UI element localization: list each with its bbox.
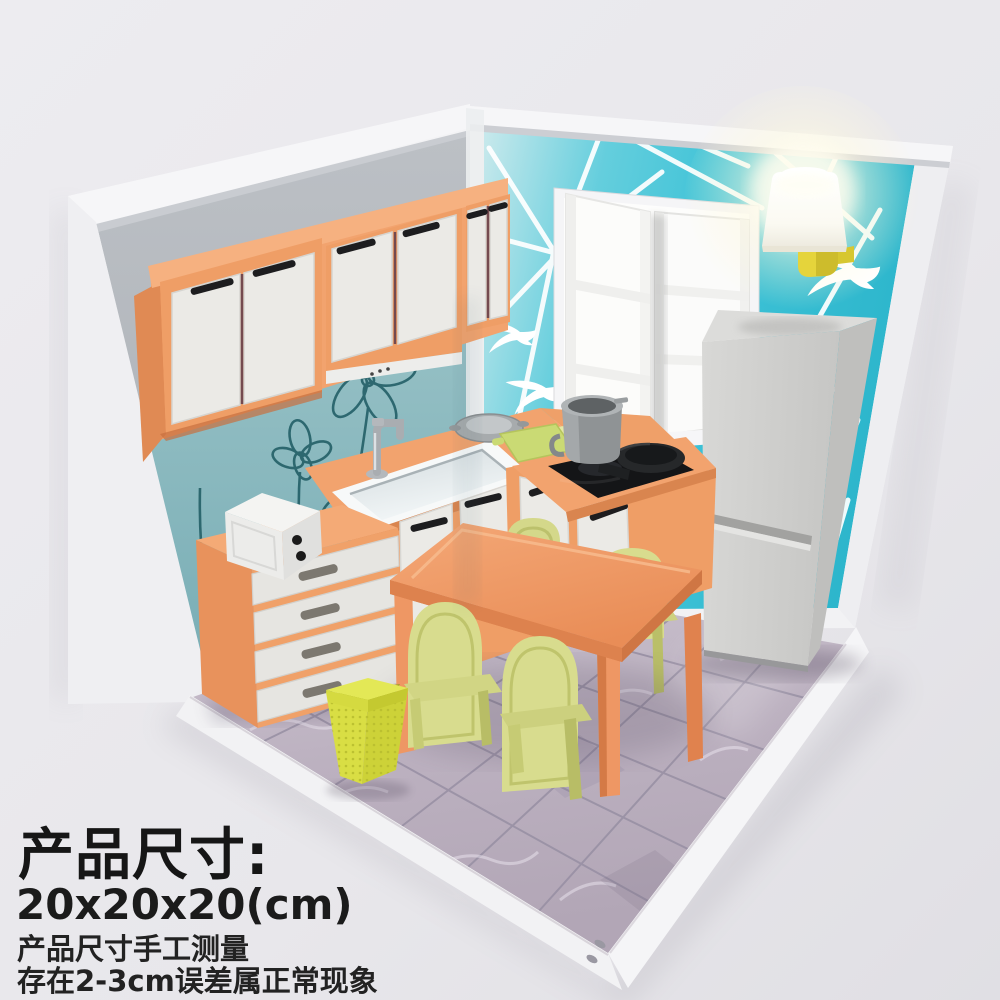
microwave-knob xyxy=(296,551,306,561)
wall-lamp xyxy=(684,86,920,322)
corner-shadow xyxy=(455,295,480,610)
miniature-kitchen-scene xyxy=(0,0,1000,1000)
microwave-knob xyxy=(292,535,302,545)
product-photo-miniature-kitchen: 产品尺寸: 20x20x20(cm) 产品尺寸手工测量 存在2-3cm误差属正常… xyxy=(0,0,1000,1000)
